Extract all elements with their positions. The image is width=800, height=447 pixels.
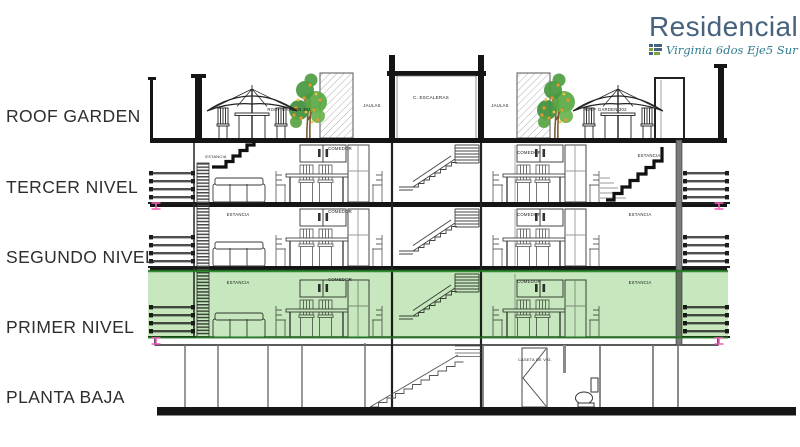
toilet-icon xyxy=(576,378,599,407)
dining-right-segundo xyxy=(493,209,599,266)
label-roof-garden-301: ROOF GARDEN 301 xyxy=(267,107,311,112)
label-jaulas-left: JAULAS xyxy=(363,103,380,108)
balcony-slats-right-segundo xyxy=(682,235,730,268)
brand-logo: Residencial Virginia 6dos Eje5 Sur xyxy=(649,12,799,57)
core-stair-segundo xyxy=(399,209,479,254)
building-section-drawing: ROOF GARDEN 301 ROOF GARDEN 302 JAULAS J… xyxy=(0,0,800,447)
label-comedor: COMEDOR xyxy=(328,209,352,214)
dining-left-segundo xyxy=(276,209,382,266)
sofa-tercer xyxy=(213,178,265,202)
logo-subtitle: Virginia 6dos Eje5 Sur xyxy=(666,43,798,57)
level-label-roof-garden: ROOF GARDEN xyxy=(6,106,156,127)
label-caseta: CASETA DE VIG. xyxy=(518,357,552,362)
primer-nivel-highlight xyxy=(148,271,728,338)
logo-title: Residencial xyxy=(649,12,799,42)
ground-floor xyxy=(185,343,678,407)
logo-bars-icon xyxy=(649,44,663,56)
balcony-slats-right-tercer xyxy=(682,171,730,204)
label-comedor: COMEDOR xyxy=(517,150,541,155)
label-comedor: COMEDOR xyxy=(517,212,541,217)
screenshot-root: ROOF GARDEN 301 ROOF GARDEN 302 JAULAS J… xyxy=(0,0,800,447)
ground-stair xyxy=(370,362,464,407)
label-estancia: ESTANCIA xyxy=(227,212,250,217)
label-estancia: ESTANCIA xyxy=(205,154,226,159)
label-comedor: COMEDOR xyxy=(328,146,352,151)
level-label-segundo-nivel: SEGUNDO NIVEL xyxy=(6,247,156,268)
level-label-planta-baja: PLANTA BAJA xyxy=(6,387,156,408)
sofa-segundo xyxy=(213,242,265,266)
dining-right-tercer xyxy=(493,145,599,202)
core-stair-tercer xyxy=(399,145,479,190)
dining-left-tercer xyxy=(276,145,382,202)
level-label-tercer-nivel: TERCER NIVEL xyxy=(6,177,156,198)
label-roof-garden-302: ROOF GARDEN 302 xyxy=(583,107,627,112)
column-stub xyxy=(563,345,566,373)
level-label-primer-nivel: PRIMER NIVEL xyxy=(6,317,156,338)
ground-line xyxy=(157,407,796,416)
label-jaulas-right: JAULAS xyxy=(491,103,508,108)
label-stair-core: C. ESCALERAS xyxy=(413,95,449,100)
label-estancia: ESTANCIA xyxy=(629,212,652,217)
label-estancia: ESTANCIA xyxy=(638,153,661,158)
